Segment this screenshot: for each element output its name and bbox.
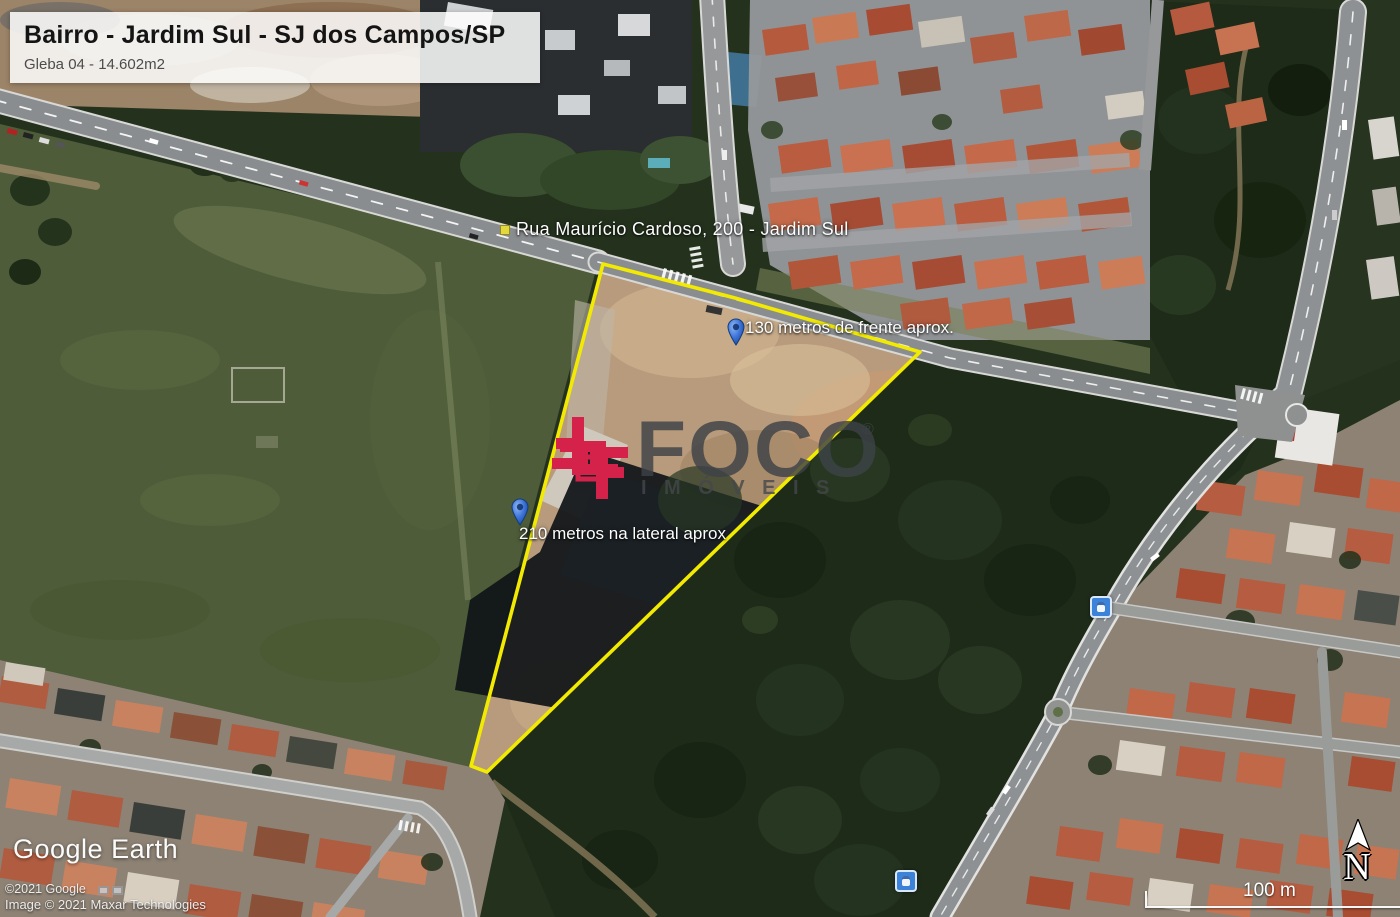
bus-stop-icon[interactable] <box>895 870 917 892</box>
imagery-credit-line: Image © 2021 Maxar Technologies <box>5 897 206 912</box>
photo-attribution-icons <box>98 886 123 895</box>
google-earth-logo: Google Earth <box>13 834 178 865</box>
listing-subtitle: Gleba 04 - 14.602m2 <box>24 56 526 73</box>
map-pin-side-icon[interactable] <box>511 498 529 526</box>
street-label: Rua Maurício Cardoso, 200 - Jardim Sul <box>500 219 849 240</box>
google-earth-view: Bairro - Jardim Sul - SJ dos Campos/SP G… <box>0 0 1400 917</box>
listing-title: Bairro - Jardim Sul - SJ dos Campos/SP <box>24 21 526 50</box>
pin-side-label: 210 metros na lateral aprox <box>519 524 726 544</box>
map-pin-front-icon[interactable] <box>727 318 745 346</box>
listing-info-box: Bairro - Jardim Sul - SJ dos Campos/SP G… <box>10 12 540 83</box>
bus-stop-icon[interactable] <box>1090 596 1112 618</box>
street-name: Rua Maurício Cardoso, 200 - Jardim Sul <box>516 219 849 240</box>
copyright-line: ©2021 Google <box>5 882 86 896</box>
street-marker-icon <box>500 225 510 235</box>
registered-mark: ® <box>862 421 874 439</box>
watermark-subtitle: IMÓVEIS <box>641 477 847 500</box>
scale-bar-label: 100 m <box>1243 880 1296 902</box>
foco-logo-icon <box>540 415 640 519</box>
north-label: N <box>1338 848 1376 886</box>
agency-watermark: FOCO ® IMÓVEIS <box>540 415 1020 527</box>
pin-front-label: 130 metros de frente aprox. <box>745 318 954 338</box>
